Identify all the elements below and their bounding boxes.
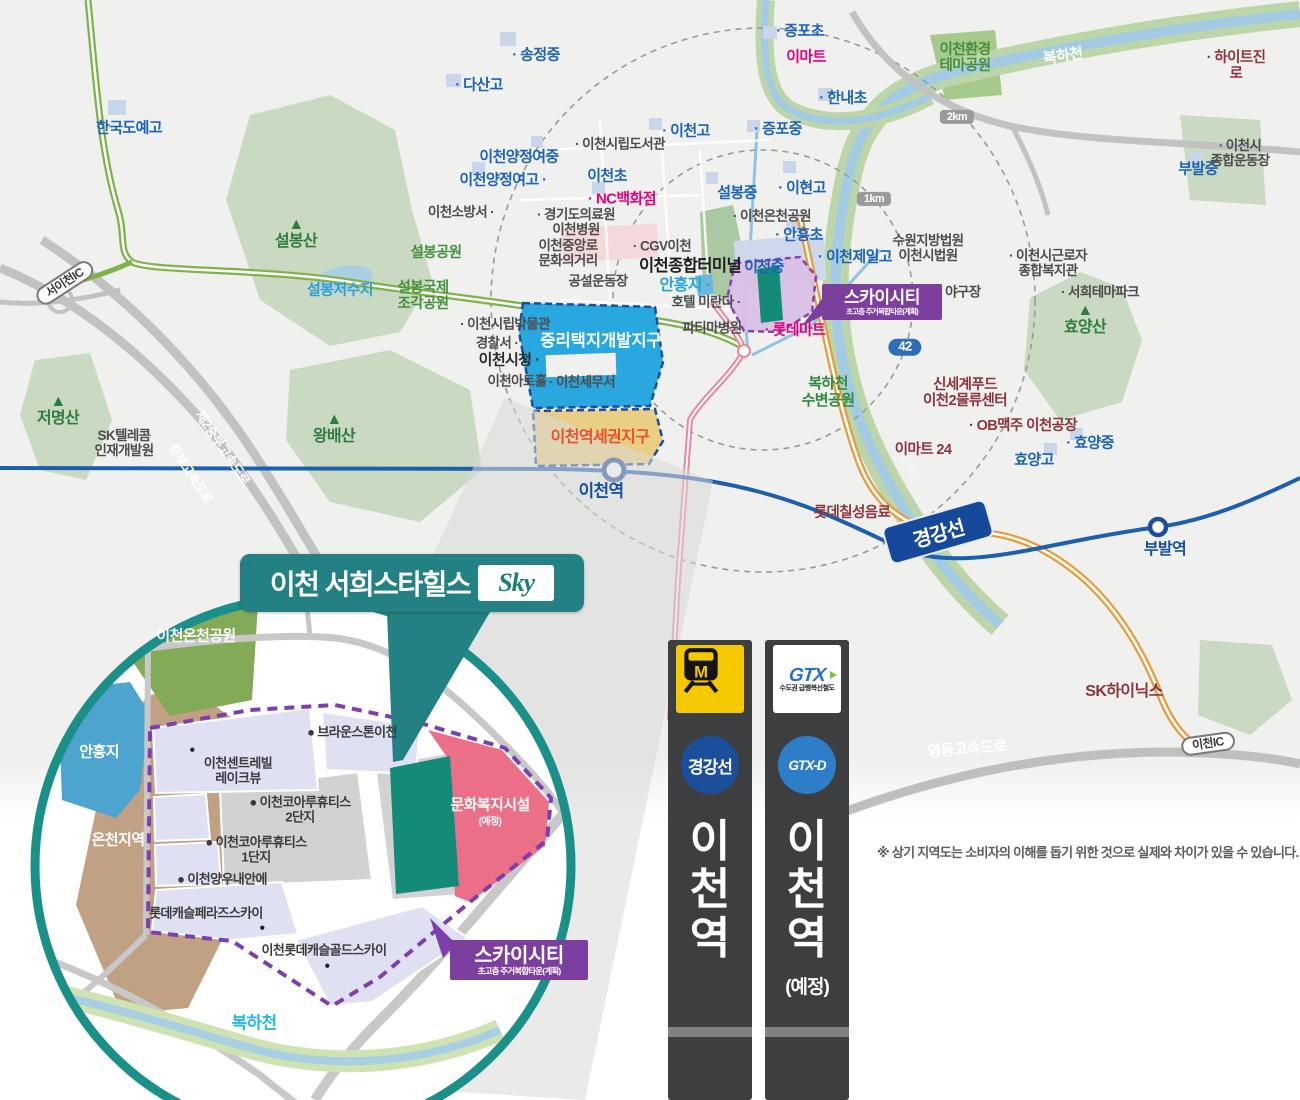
sky-swoosh-icon xyxy=(240,554,254,574)
line-badge-gyeonggang: 경강선 xyxy=(681,736,739,794)
line-badge-gtx-d: GTX-D xyxy=(778,736,836,794)
sky-logo: Sky xyxy=(478,565,554,601)
pillar-band xyxy=(668,1027,752,1037)
skycity-subtitle: 초고층 주거복합타운(계획) xyxy=(830,308,934,316)
metro-train-icon: M xyxy=(676,645,744,713)
sky-logo-text: Sky xyxy=(498,568,534,598)
location-map-page: · 송정중· 다산고한국도예고· 증포초이마트· 한내초· 이천고· 증포중· … xyxy=(0,0,1300,1100)
map-graphics xyxy=(0,0,1300,1100)
gtx-logo-arrow-icon xyxy=(830,671,837,679)
station-sign-gyeonggang: M 경강선 이 천 역 xyxy=(668,640,752,1100)
skycity-badge-inset: 스카이시티 초고층 주거복합타운(계획) xyxy=(450,940,588,980)
skycity-title: 스카이시티 xyxy=(458,945,580,967)
skycity-subtitle: 초고층 주거복합타운(계획) xyxy=(458,967,580,976)
pillar-band xyxy=(765,1027,849,1037)
disclaimer-text: ※ 상기 지역도는 소비자의 이해를 돕기 위한 것으로 실제와 차이가 있을 … xyxy=(877,842,1298,861)
station-sign-gtx: GTX 수도권 급행복선철도 GTX-D 이 천 역 (예정) xyxy=(765,640,849,1100)
title-banner: 이천 서희스타힐스 Sky xyxy=(240,554,584,612)
station-name: 이 천 역 xyxy=(765,818,849,963)
station-name: 이 천 역 xyxy=(668,818,752,963)
skycity-title: 스카이시티 xyxy=(830,289,934,308)
gtx-logo: GTX 수도권 급행복선철도 xyxy=(773,645,841,713)
project-title: 이천 서희스타힐스 xyxy=(270,563,470,603)
station-note: (예정) xyxy=(765,972,849,999)
metro-icon-letter: M xyxy=(694,662,708,681)
skycity-badge-main: 스카이시티 초고층 주거복합타운(계획) xyxy=(822,284,942,320)
gtx-logo-text: GTX xyxy=(788,666,826,685)
